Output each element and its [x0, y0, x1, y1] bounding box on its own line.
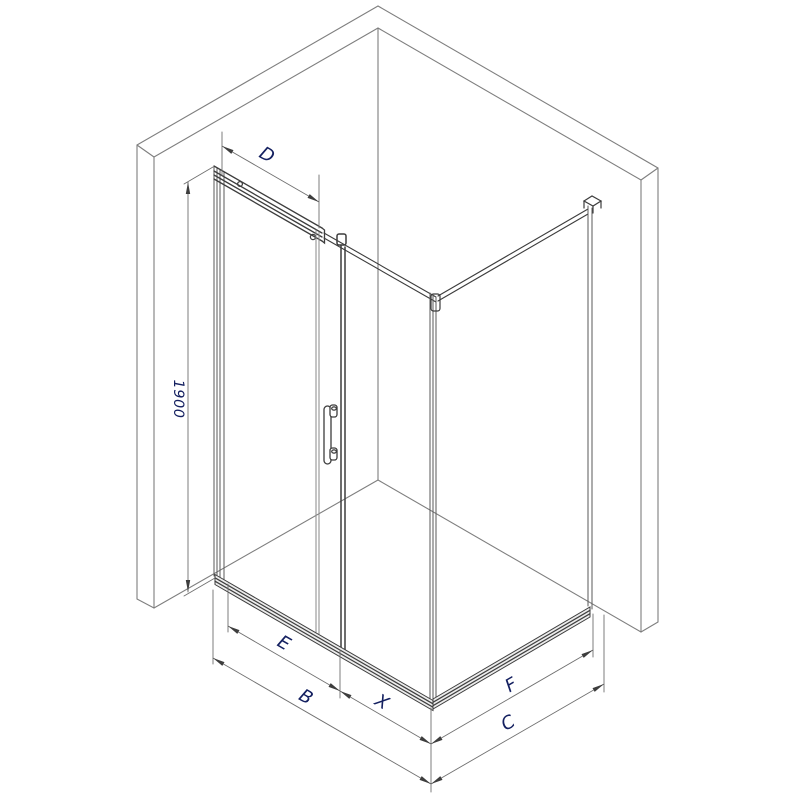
door-wall-profile-left [214, 166, 224, 581]
dimension-labels: D 1900 E B X F C [170, 143, 522, 736]
dimension-lines [184, 132, 604, 792]
dim-label-b: B [295, 685, 316, 709]
dimension-c [431, 615, 604, 784]
sliding-door-assembly [214, 166, 440, 711]
technical-drawing-shower-enclosure: D 1900 E B X F C [0, 0, 800, 800]
dimension-height-1900 [184, 167, 215, 596]
slider-stile [337, 234, 346, 650]
side-panel-wall-profile [584, 196, 601, 609]
wall-structure [137, 6, 658, 632]
door-handle [324, 405, 337, 464]
door-bottom-rail [215, 575, 433, 711]
side-panel [433, 196, 601, 709]
stabilizer-bar [438, 209, 588, 301]
dim-label-c: C [498, 711, 520, 736]
corner-post [430, 293, 436, 701]
fixed-glass-edge [316, 230, 319, 634]
dim-label-height: 1900 [170, 380, 186, 419]
drawing-canvas: D 1900 E B X F C [0, 0, 800, 800]
door-top-rail [214, 166, 325, 243]
dim-label-e: E [274, 631, 295, 655]
dim-label-d: D [255, 143, 278, 168]
